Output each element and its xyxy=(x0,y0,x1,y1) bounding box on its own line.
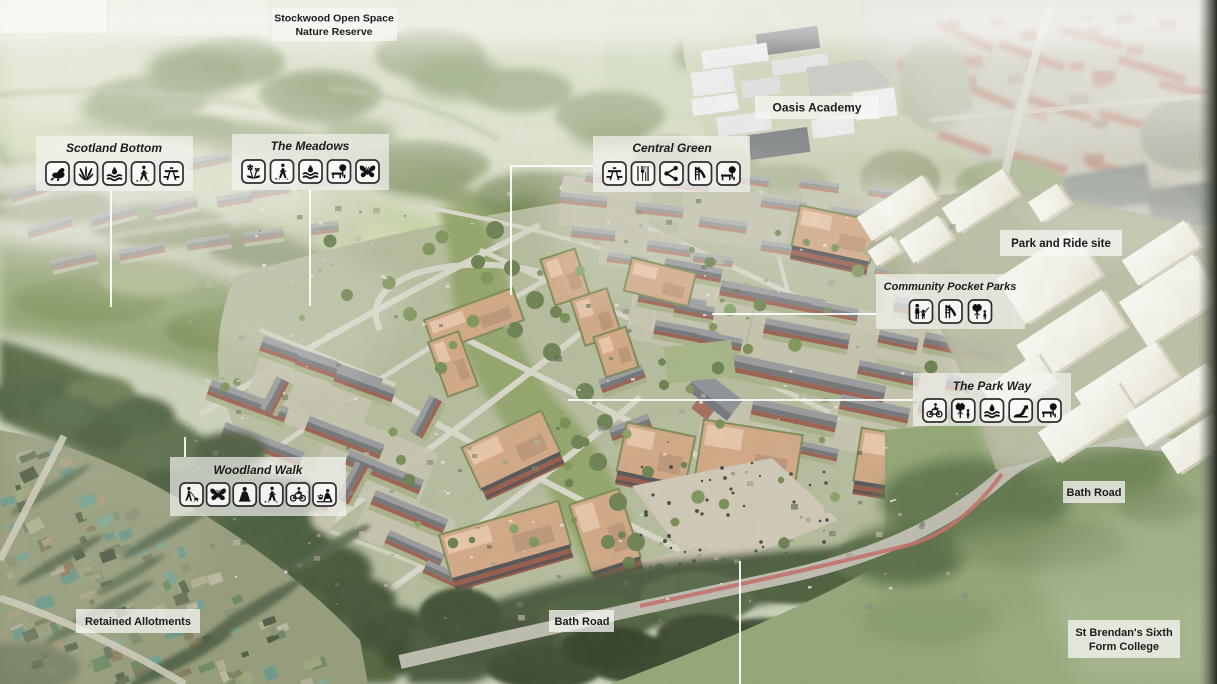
svg-text:Woodland Walk: Woodland Walk xyxy=(214,463,304,477)
svg-text:Scotland Bottom: Scotland Bottom xyxy=(66,141,162,155)
svg-text:Park and Ride site: Park and Ride site xyxy=(1011,238,1111,250)
svg-text:St Brendan's Sixth: St Brendan's Sixth xyxy=(1075,627,1173,639)
svg-text:Bath Road: Bath Road xyxy=(555,616,610,628)
svg-text:Bath Road: Bath Road xyxy=(1067,487,1122,499)
svg-text:Nature Reserve: Nature Reserve xyxy=(295,26,372,38)
svg-text:The Meadows: The Meadows xyxy=(271,139,350,153)
svg-text:Retained Allotments: Retained Allotments xyxy=(85,616,191,628)
svg-text:Oasis Academy: Oasis Academy xyxy=(773,101,862,115)
svg-text:Central Green: Central Green xyxy=(632,141,711,155)
svg-text:Community Pocket Parks: Community Pocket Parks xyxy=(884,281,1017,293)
svg-text:The Park Way: The Park Way xyxy=(953,379,1033,393)
svg-text:Stockwood Open Space: Stockwood Open Space xyxy=(274,12,394,24)
svg-text:Form College: Form College xyxy=(1089,641,1159,653)
